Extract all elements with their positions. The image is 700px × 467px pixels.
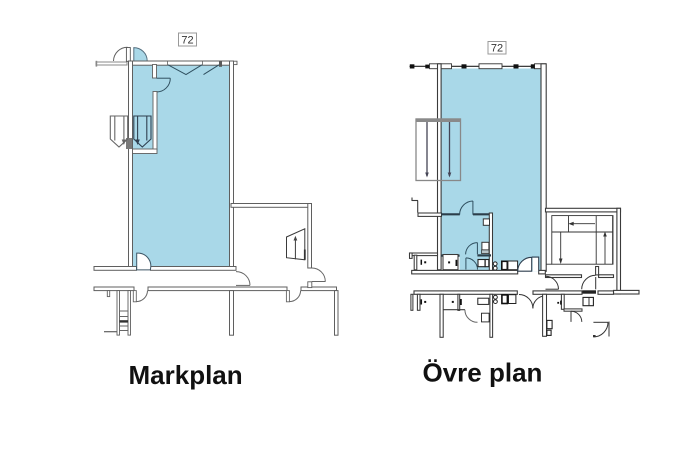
- svg-text:72: 72: [491, 43, 503, 55]
- svg-text:Övre plan: Övre plan: [423, 358, 543, 388]
- svg-text:Markplan: Markplan: [129, 360, 243, 390]
- svg-text:72: 72: [181, 35, 193, 47]
